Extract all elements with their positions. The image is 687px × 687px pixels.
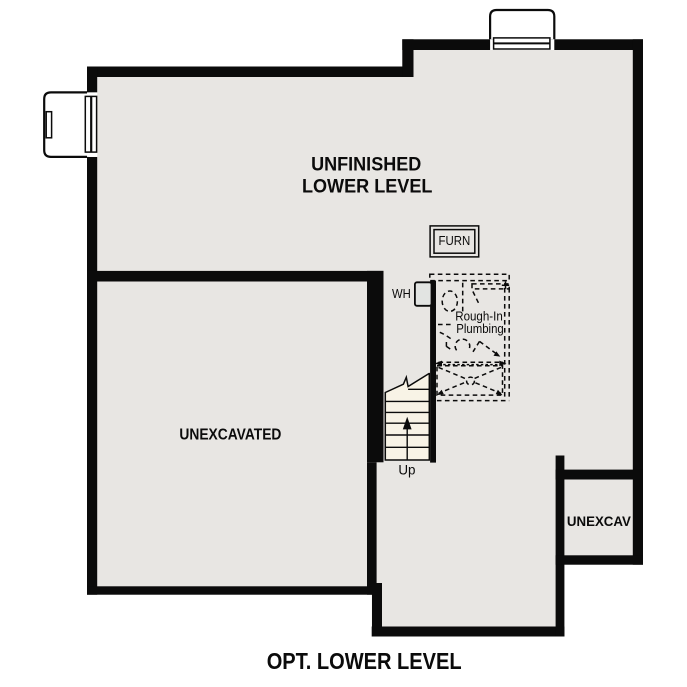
svg-text:Up: Up xyxy=(398,463,415,478)
svg-text:LOWER LEVEL: LOWER LEVEL xyxy=(302,175,433,197)
svg-text:UNEXCAVATED: UNEXCAVATED xyxy=(179,427,281,444)
svg-text:OPT. LOWER LEVEL: OPT. LOWER LEVEL xyxy=(267,648,462,674)
svg-text:Plumbing: Plumbing xyxy=(456,321,504,336)
svg-text:FURN: FURN xyxy=(439,233,471,248)
svg-text:WH: WH xyxy=(392,287,411,301)
svg-text:UNEXCAV: UNEXCAV xyxy=(567,514,632,529)
svg-text:UNFINISHED: UNFINISHED xyxy=(311,154,421,176)
